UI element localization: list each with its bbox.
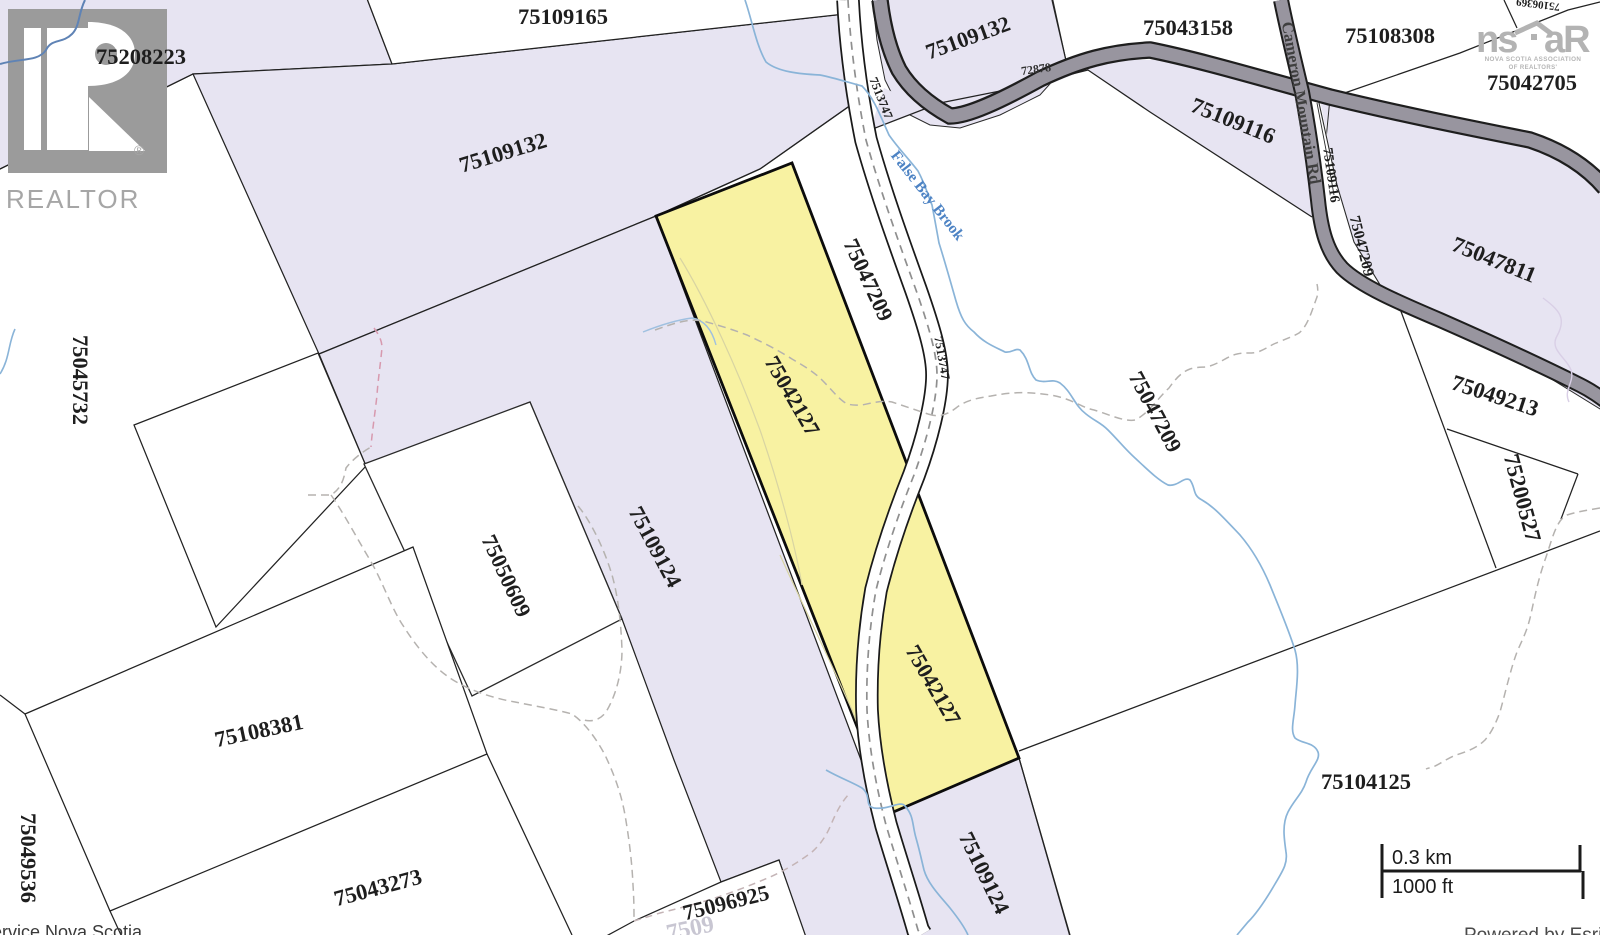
svg-text:Powered by Esri: Powered by Esri [1464, 925, 1600, 935]
svg-text:75108308: 75108308 [1345, 23, 1435, 48]
svg-text:75109165: 75109165 [518, 4, 608, 29]
svg-text:ns: ns [1476, 19, 1517, 61]
svg-text:1000 ft: 1000 ft [1392, 876, 1454, 898]
svg-text:75049536: 75049536 [16, 813, 41, 903]
svg-text:aR: aR [1544, 19, 1590, 61]
svg-text:REALTOR: REALTOR [6, 184, 140, 214]
svg-text:®: ® [134, 142, 145, 158]
svg-text:75045732: 75045732 [68, 335, 93, 425]
svg-text:75208223: 75208223 [96, 44, 186, 69]
svg-text:0.3 km: 0.3 km [1392, 847, 1452, 869]
svg-text:75042705: 75042705 [1487, 70, 1577, 95]
svg-text:NOVA SCOTIA ASSOCIATION: NOVA SCOTIA ASSOCIATION [1485, 56, 1582, 63]
svg-text:ervice Nova Scotia: ervice Nova Scotia [0, 922, 143, 935]
svg-text:75104125: 75104125 [1321, 769, 1411, 794]
svg-text:75043158: 75043158 [1143, 15, 1233, 40]
